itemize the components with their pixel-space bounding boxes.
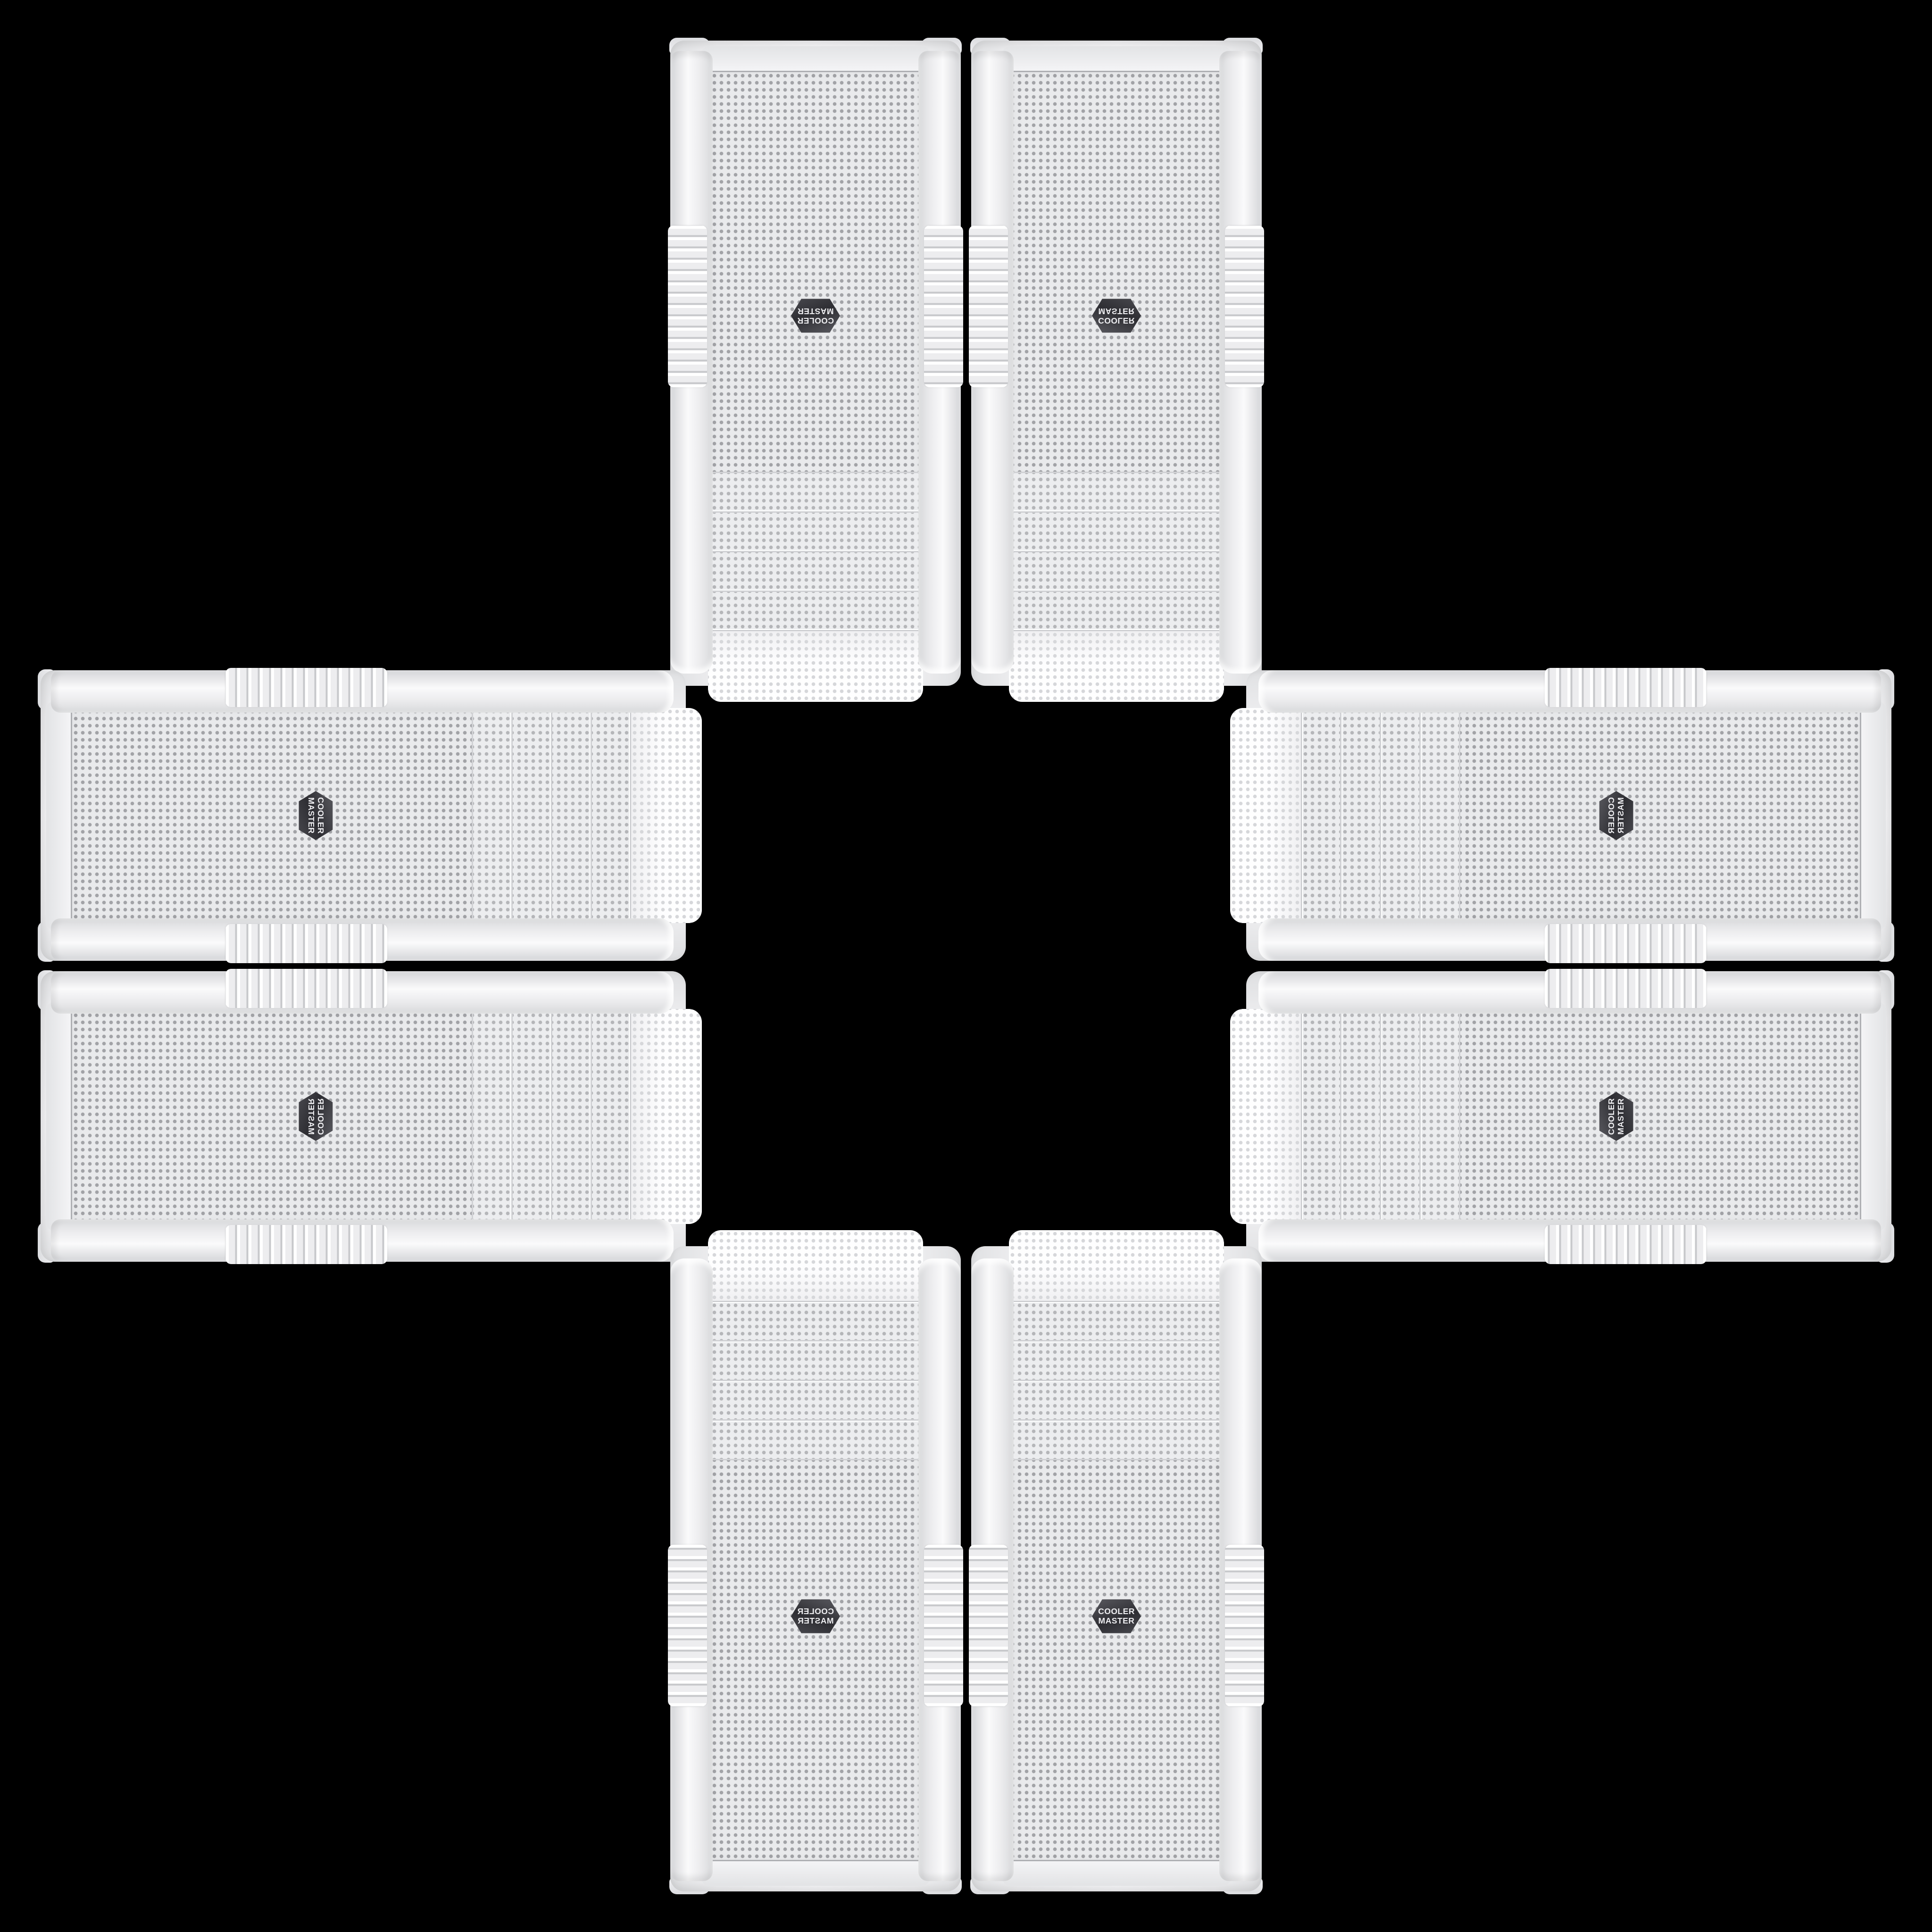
cooler-master-logo-badge: COOLER MASTER (1598, 1092, 1635, 1141)
front-mesh-panel: COOLER MASTER (69, 708, 702, 923)
badge-text-line1: COOLER (1098, 316, 1135, 325)
drive-bay-covers (1302, 1009, 1460, 1224)
grip-ribs-right (668, 1545, 707, 1707)
mesh-top-bulge (630, 708, 702, 923)
grip-ribs-left (1545, 1225, 1707, 1264)
drive-bay-cover (1341, 708, 1381, 923)
side-rail-left (918, 51, 961, 674)
front-mesh-panel: COOLER MASTER (1009, 69, 1224, 702)
bottom-trim (1860, 701, 1886, 930)
drive-bay-cover (1421, 1009, 1460, 1224)
mesh-top-bulge (708, 1230, 923, 1302)
side-rail-right (1219, 51, 1262, 674)
grip-ribs-left (924, 1545, 963, 1707)
badge-text-line2: MASTER (1099, 307, 1135, 315)
drive-bay-cover (1009, 1302, 1224, 1341)
side-rail-right (1258, 918, 1881, 961)
drive-bay-cover (708, 472, 923, 511)
drive-bay-cover (1302, 1009, 1341, 1224)
badge-text-line2: MASTER (307, 798, 315, 834)
side-rail-right (670, 51, 713, 674)
grip-ribs-right (225, 924, 387, 963)
cooler-master-logo-badge: COOLER MASTER (297, 1092, 334, 1141)
cooler-master-logo-badge: COOLER MASTER (1092, 1598, 1141, 1635)
drive-bay-cover (551, 1009, 591, 1224)
drive-bay-covers (708, 1302, 923, 1460)
drive-bay-cover (472, 1009, 511, 1224)
side-rail-left (918, 1258, 961, 1881)
drive-bay-cover (1009, 1381, 1224, 1421)
mesh-top-bulge (1009, 630, 1224, 702)
drive-bay-covers (472, 708, 630, 923)
badge-text-line1: COOLER (316, 797, 325, 834)
side-rail-right (51, 918, 674, 961)
bottom-trim (1002, 1860, 1231, 1886)
drive-bay-covers (1302, 708, 1460, 923)
drive-bay-cover (1341, 1009, 1381, 1224)
pc-case-tile-top-right: COOLER MASTER (971, 41, 1262, 706)
pc-case: COOLER MASTER (1226, 670, 1891, 961)
pc-case: COOLER MASTER (670, 41, 961, 706)
bottom-trim (701, 1860, 930, 1886)
grip-ribs-left (969, 1545, 1008, 1707)
badge-text-line1: COOLER (797, 1607, 834, 1616)
side-rail-left (971, 1258, 1014, 1881)
drive-bay-covers (1009, 1302, 1224, 1460)
drive-bay-covers (472, 1009, 630, 1224)
bottom-trim (46, 1002, 72, 1231)
drive-bay-cover (511, 1009, 551, 1224)
cooler-master-logo-badge: COOLER MASTER (1092, 297, 1141, 334)
drive-bay-cover (1009, 591, 1224, 630)
drive-bay-cover (591, 1009, 630, 1224)
pc-case: COOLER MASTER (1226, 971, 1891, 1262)
cooler-master-logo-badge: COOLER MASTER (1598, 791, 1635, 840)
pc-case: COOLER MASTER (41, 971, 706, 1262)
side-rail-left (51, 670, 674, 713)
bottom-trim (1860, 1002, 1886, 1231)
side-rail-left (1258, 670, 1881, 713)
pc-case: COOLER MASTER (41, 670, 706, 961)
side-rail-right (670, 1258, 713, 1881)
drive-bay-cover (708, 551, 923, 591)
side-rail-left (1258, 1219, 1881, 1262)
grip-ribs-left (969, 225, 1008, 387)
grip-ribs-right (1225, 225, 1264, 387)
pc-case-tile-left-bottom: COOLER MASTER (41, 971, 706, 1262)
grip-ribs-left (924, 225, 963, 387)
bottom-trim (701, 46, 930, 72)
front-mesh-panel: COOLER MASTER (1230, 708, 1863, 923)
grip-ribs-right (668, 225, 707, 387)
badge-text-line2: MASTER (798, 307, 834, 315)
pc-case-tile-left-top: COOLER MASTER (41, 670, 706, 961)
bottom-trim (1002, 46, 1231, 72)
pc-case-tile-bottom-right: COOLER MASTER (971, 1226, 1262, 1891)
drive-bay-cover (708, 1381, 923, 1421)
side-rail-right (51, 971, 674, 1014)
badge-text-line1: COOLER (316, 1098, 325, 1135)
drive-bay-cover (708, 1341, 923, 1381)
drive-bay-cover (708, 1302, 923, 1341)
pc-case: COOLER MASTER (971, 1226, 1262, 1891)
drive-bay-cover (708, 1421, 923, 1460)
front-mesh-panel: COOLER MASTER (1230, 1009, 1863, 1224)
badge-text-line2: MASTER (1617, 1099, 1625, 1135)
pc-case: COOLER MASTER (670, 1226, 961, 1891)
collage-canvas: COOLER MASTER (0, 0, 1932, 1932)
drive-bay-cover (1381, 708, 1421, 923)
side-rail-left (51, 1219, 674, 1262)
drive-bay-cover (1009, 1421, 1224, 1460)
grip-ribs-right (1545, 969, 1707, 1008)
front-mesh-panel: COOLER MASTER (708, 69, 923, 702)
badge-text-line2: MASTER (798, 1617, 834, 1625)
drive-bay-cover (1009, 551, 1224, 591)
drive-bay-cover (1381, 1009, 1421, 1224)
grip-ribs-right (225, 969, 387, 1008)
grip-ribs-right (1225, 1545, 1264, 1707)
front-mesh-panel: COOLER MASTER (1009, 1230, 1224, 1863)
front-mesh-panel: COOLER MASTER (708, 1230, 923, 1863)
mesh-top-bulge (1230, 708, 1302, 923)
front-mesh-panel: COOLER MASTER (69, 1009, 702, 1224)
grip-ribs-left (1545, 668, 1707, 707)
side-rail-right (1258, 971, 1881, 1014)
badge-text-line1: COOLER (797, 316, 834, 325)
pc-case-tile-right-top: COOLER MASTER (1226, 670, 1891, 961)
badge-text-line2: MASTER (307, 1099, 315, 1135)
drive-bay-covers (708, 472, 923, 630)
grip-ribs-left (225, 668, 387, 707)
drive-bay-cover (1009, 511, 1224, 551)
grip-ribs-left (225, 1225, 387, 1264)
badge-text-line1: COOLER (1607, 1098, 1616, 1135)
badge-text-line2: MASTER (1617, 798, 1625, 834)
side-rail-left (971, 51, 1014, 674)
drive-bay-cover (708, 511, 923, 551)
mesh-top-bulge (708, 630, 923, 702)
drive-bay-cover (1009, 472, 1224, 511)
drive-bay-cover (1302, 708, 1341, 923)
mesh-top-bulge (630, 1009, 702, 1224)
drive-bay-cover (708, 591, 923, 630)
drive-bay-cover (472, 708, 511, 923)
drive-bay-cover (1009, 1341, 1224, 1381)
pc-case-tile-top-left: COOLER MASTER (670, 41, 961, 706)
grip-ribs-right (1545, 924, 1707, 963)
badge-text-line1: COOLER (1098, 1607, 1135, 1616)
mesh-top-bulge (1230, 1009, 1302, 1224)
badge-text-line2: MASTER (1099, 1617, 1135, 1625)
pc-case-tile-right-bottom: COOLER MASTER (1226, 971, 1891, 1262)
badge-text-line1: COOLER (1607, 797, 1616, 834)
drive-bay-cover (511, 708, 551, 923)
drive-bay-covers (1009, 472, 1224, 630)
drive-bay-cover (591, 708, 630, 923)
drive-bay-cover (551, 708, 591, 923)
mesh-top-bulge (1009, 1230, 1224, 1302)
cooler-master-logo-badge: COOLER MASTER (791, 1598, 840, 1635)
cooler-master-logo-badge: COOLER MASTER (297, 791, 334, 840)
pc-case: COOLER MASTER (971, 41, 1262, 706)
bottom-trim (46, 701, 72, 930)
side-rail-right (1219, 1258, 1262, 1881)
drive-bay-cover (1421, 708, 1460, 923)
pc-case-tile-bottom-left: COOLER MASTER (670, 1226, 961, 1891)
cooler-master-logo-badge: COOLER MASTER (791, 297, 840, 334)
